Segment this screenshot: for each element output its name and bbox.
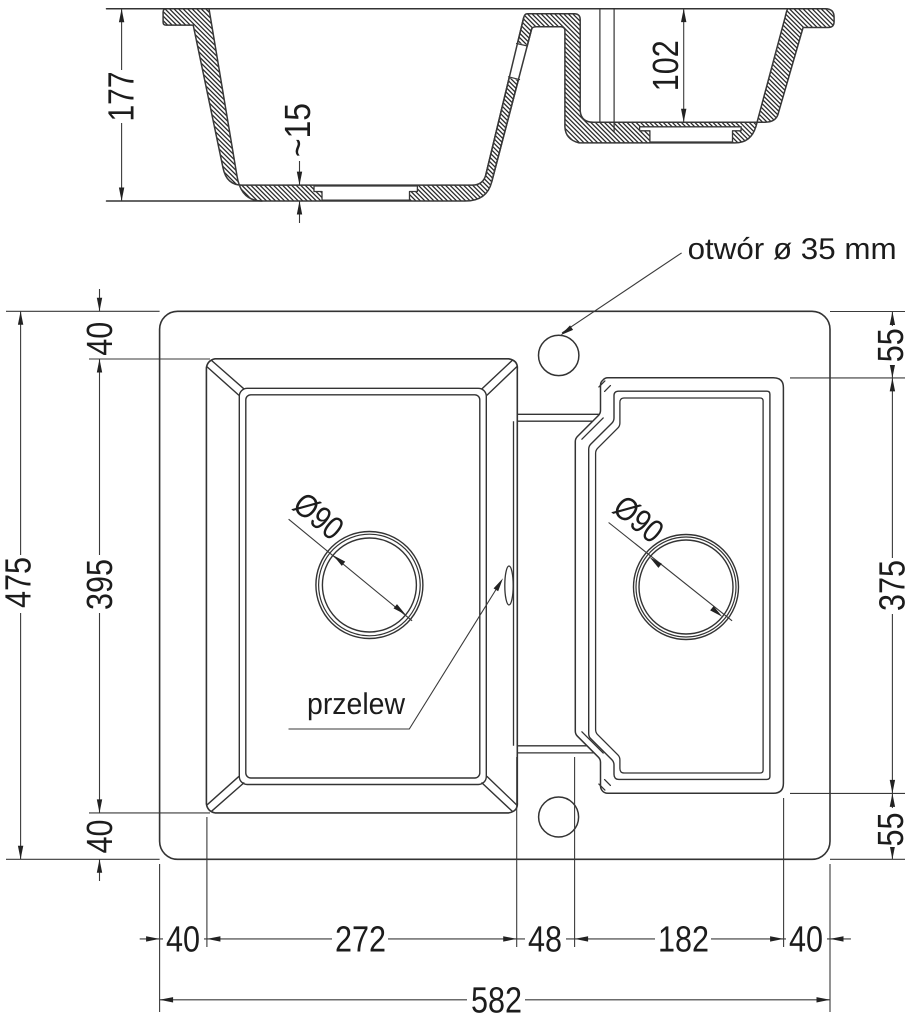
- svg-text:40: 40: [166, 919, 200, 960]
- svg-text:przelew: przelew: [307, 688, 405, 721]
- svg-text:582: 582: [471, 980, 522, 1021]
- svg-text:Ø90: Ø90: [287, 485, 351, 547]
- svg-text:40: 40: [79, 820, 120, 854]
- svg-text:272: 272: [335, 919, 386, 960]
- svg-text:40: 40: [789, 919, 823, 960]
- svg-text:40: 40: [79, 322, 120, 356]
- svg-text:otwór ø 35 mm: otwór ø 35 mm: [688, 233, 897, 266]
- svg-text:177: 177: [101, 72, 142, 122]
- svg-text:48: 48: [528, 919, 562, 960]
- svg-text:395: 395: [79, 559, 120, 610]
- svg-text:55: 55: [870, 813, 911, 847]
- svg-text:475: 475: [0, 557, 39, 608]
- svg-text:102: 102: [645, 40, 686, 91]
- svg-text:~15: ~15: [277, 103, 318, 157]
- svg-text:55: 55: [870, 328, 911, 362]
- svg-text:375: 375: [872, 560, 913, 611]
- svg-text:182: 182: [658, 919, 709, 960]
